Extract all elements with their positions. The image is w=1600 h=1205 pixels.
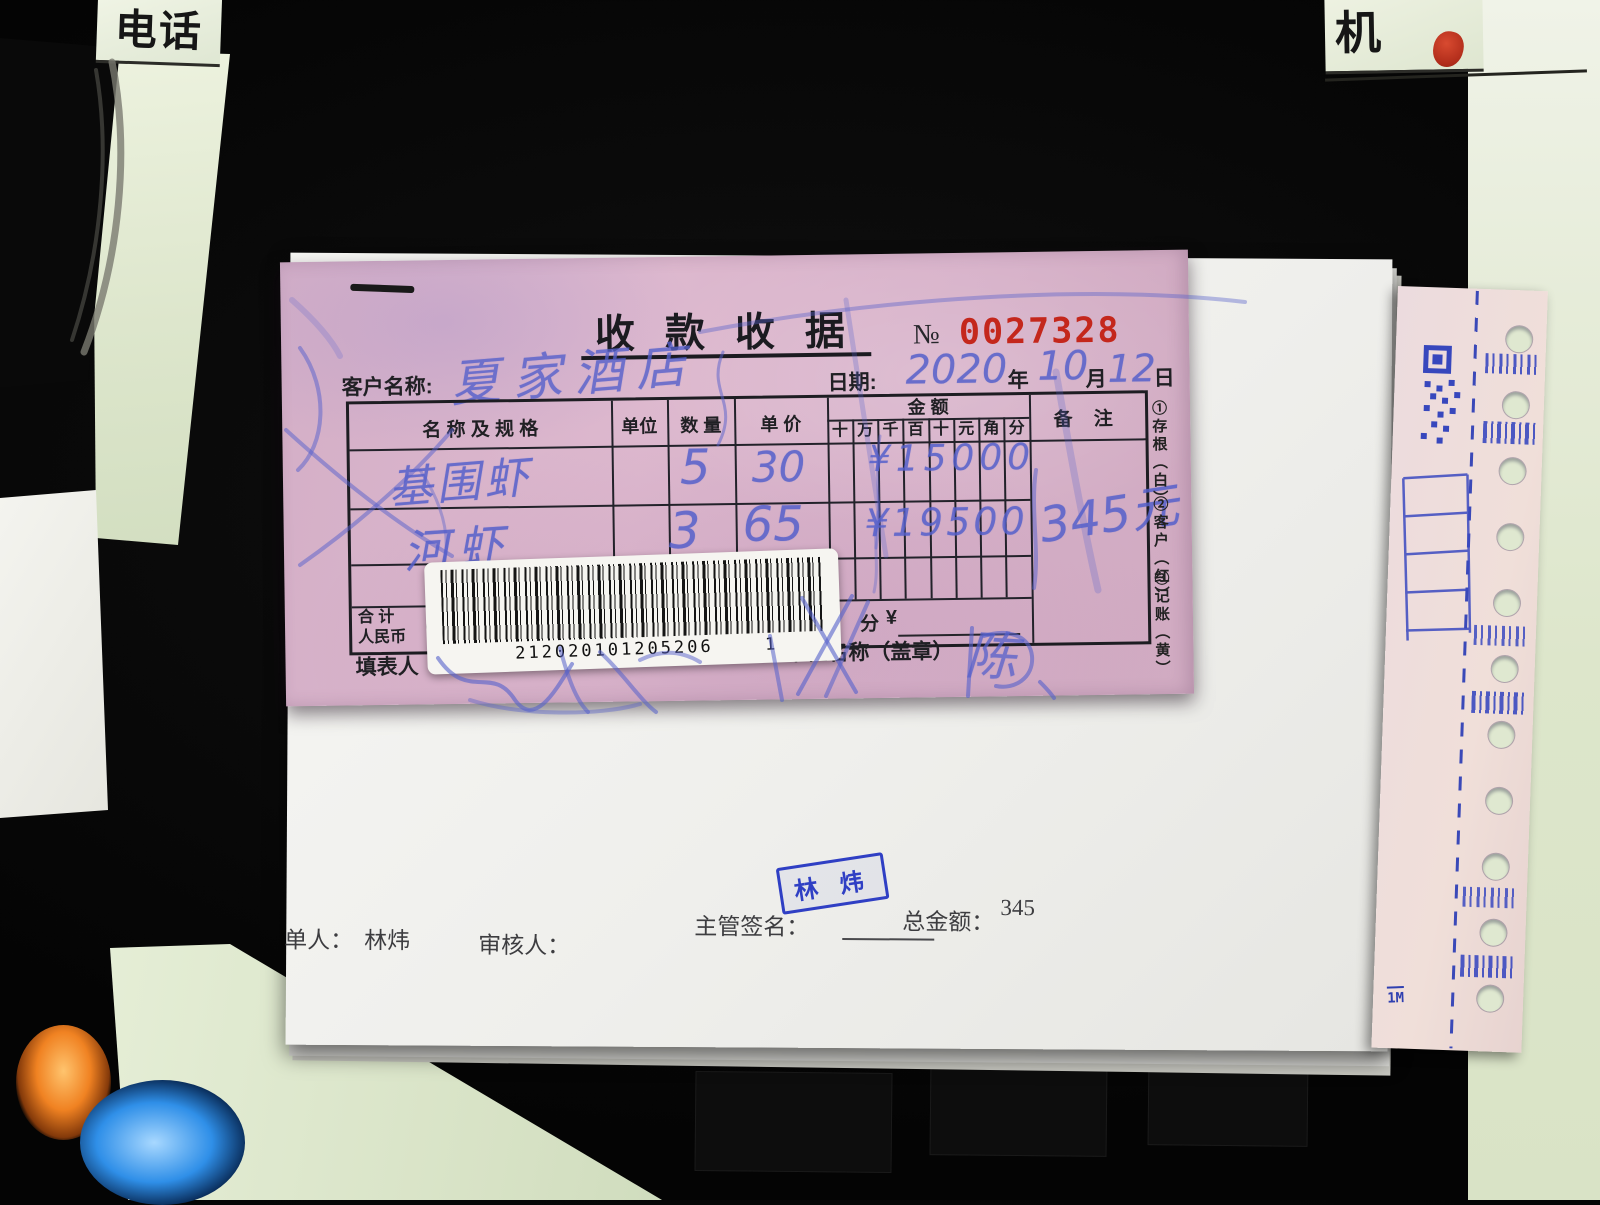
date-year-label: 年 — [1007, 364, 1028, 394]
item-price-hand: 30 — [752, 442, 806, 492]
total-unit-fen: 分 — [860, 609, 879, 636]
item-price-hand: 65 — [742, 496, 804, 553]
maker-value: 林炜 — [364, 921, 410, 955]
col-header-name: 名 称 及 规 格 — [349, 413, 611, 444]
copy-note-ledger: ③记账（黄） — [1150, 570, 1173, 678]
dot-matrix-print — [1485, 353, 1540, 375]
col-header-unit: 单位 — [611, 412, 667, 439]
total-amount-value: 345 — [1000, 895, 1035, 921]
col-header-price: 单 价 — [734, 410, 827, 437]
date-month-hand: 10 — [1037, 343, 1089, 390]
keyboard-key — [694, 1071, 892, 1173]
label-telephone-text: 电话 — [114, 0, 204, 59]
col-header-qty: 数 量 — [667, 411, 734, 438]
digit-header: 十 — [827, 419, 853, 442]
sprocket-hole — [1502, 392, 1529, 419]
item-amount-hand: ¥19500 — [864, 499, 1028, 545]
col-header-remark: 备 注 — [1029, 403, 1145, 432]
name-stamp: 林 炜 — [776, 852, 890, 915]
label-telephone: 电话 — [96, 0, 222, 67]
sprocket-hole — [1499, 458, 1526, 485]
sprocket-hole — [1480, 919, 1507, 946]
customer-label: 客户名称: — [341, 370, 432, 401]
blue-indicator-light — [80, 1080, 245, 1205]
receipt: 收 款 收 据 № 0027328 客户名称: 夏家酒店 日期: 2020 年 … — [280, 250, 1194, 707]
dot-matrix-print — [1471, 691, 1526, 715]
label-machine: 机 — [1324, 0, 1483, 74]
paper-corner-left — [0, 488, 112, 820]
sprocket-hole — [1482, 853, 1509, 880]
col-header-amount: 金 额 — [827, 395, 1029, 420]
barcode-sticker: 212020101205206 1 — [424, 548, 842, 674]
red-seal-blob — [1430, 29, 1466, 70]
sprocket-hole — [1477, 985, 1504, 1012]
barcode-suffix: 1 — [765, 635, 776, 655]
item-qty-hand: 5 — [679, 439, 710, 495]
copy-note-stub: ①存根（白） — [1148, 400, 1171, 508]
pen-dash-mark — [350, 284, 414, 293]
sprocket-hole — [1497, 524, 1524, 551]
item-amount-hand: ¥15000 — [867, 437, 1035, 480]
item-qty-hand: 3 — [668, 502, 701, 560]
date-month-label: 月 — [1085, 363, 1106, 393]
dot-matrix-print — [1474, 625, 1529, 647]
keyboard-key — [930, 1061, 1108, 1157]
date-label: 日期: — [827, 366, 876, 397]
total-label-line2: 人民币 — [358, 628, 406, 649]
dot-matrix-print — [1460, 955, 1515, 979]
sprocket-hole — [1494, 590, 1521, 617]
total-label: 合 计 人民币 — [358, 608, 407, 649]
barcode-number: 212020101205206 — [515, 637, 714, 664]
date-day-hand: 12 — [1107, 346, 1156, 391]
barcode-stripes — [440, 557, 824, 644]
manager-sign-label: 主管签名： — [694, 907, 809, 942]
company-hand: 陈 — [963, 613, 1019, 691]
date-year-hand: 2020 — [905, 346, 1007, 393]
date-day-label: 日 — [1153, 362, 1174, 392]
dot-matrix-print — [1483, 421, 1538, 445]
label-machine-text: 机 — [1334, 0, 1381, 63]
dot-matrix-print — [1462, 887, 1517, 909]
filler-label: 填表人 — [355, 650, 418, 681]
sprocket-hole — [1491, 656, 1518, 683]
maker-label: 单人： — [284, 921, 353, 955]
sprocket-hole — [1488, 721, 1515, 748]
photo-scene: 电话 机 林 炜 主管签名： 总金额： 345 单人： 林炜 审核人： — [0, 0, 1600, 1200]
qr-code-partial — [1395, 340, 1490, 653]
total-currency: ¥ — [886, 607, 897, 630]
strip-bottom-mark-text: 1M — [1387, 990, 1404, 1007]
sprocket-hole — [1506, 326, 1533, 353]
sprocket-hole — [1486, 787, 1513, 814]
total-amount-label: 总金额： — [902, 902, 994, 937]
auditor-label: 审核人： — [478, 926, 570, 961]
item-name-hand: 基围虾 — [386, 441, 535, 517]
manager-sign-line — [842, 938, 934, 941]
name-stamp-text: 林 炜 — [793, 868, 874, 905]
total-label-line1: 合 计 — [358, 608, 406, 629]
tractor-strip: 1M — [1371, 286, 1548, 1053]
strip-bottom-mark: 1M — [1387, 986, 1405, 1008]
